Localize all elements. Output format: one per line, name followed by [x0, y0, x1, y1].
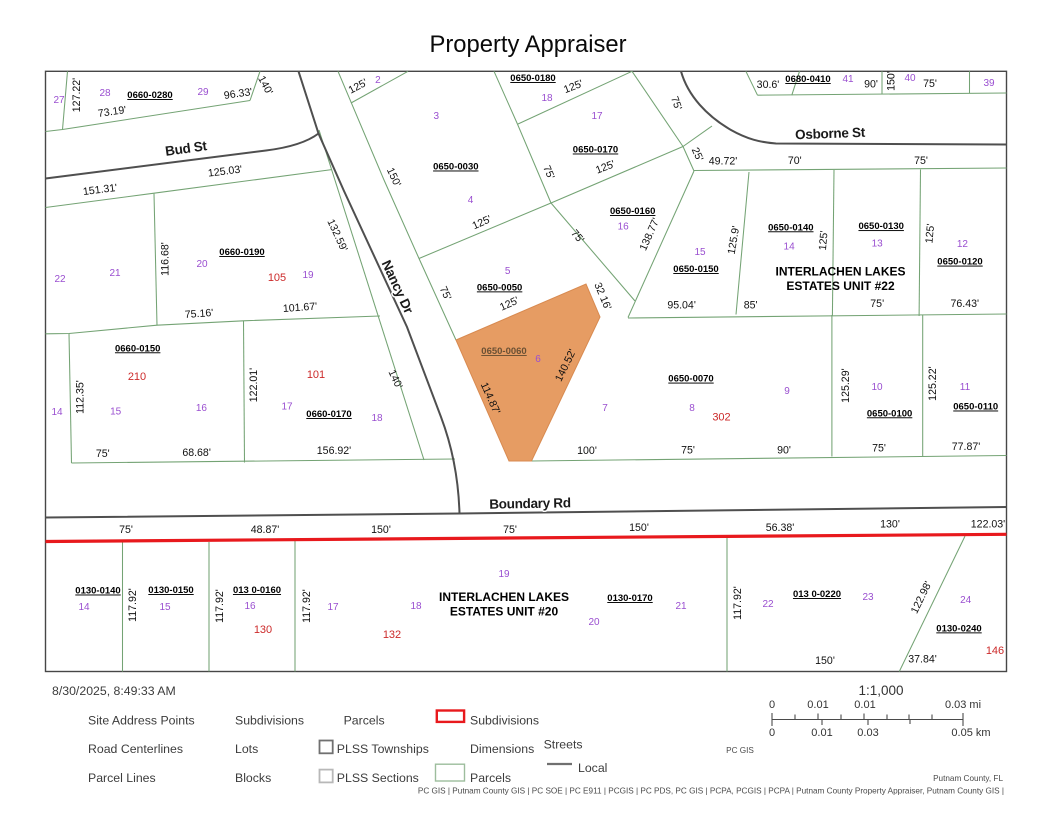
svg-text:0: 0 [769, 727, 775, 739]
svg-text:75': 75' [923, 78, 937, 90]
svg-text:12: 12 [957, 239, 969, 250]
svg-text:14: 14 [78, 602, 90, 613]
svg-text:10: 10 [871, 382, 883, 393]
svg-text:2: 2 [375, 75, 381, 86]
svg-text:Parcels: Parcels [344, 714, 385, 728]
svg-text:0650-0070: 0650-0070 [668, 374, 713, 385]
svg-text:0660-0190: 0660-0190 [219, 247, 264, 258]
svg-text:37.84': 37.84' [908, 653, 937, 665]
svg-text:Boundary Rd: Boundary Rd [489, 495, 571, 511]
svg-text:Blocks: Blocks [235, 771, 271, 785]
svg-text:17: 17 [281, 402, 293, 413]
svg-text:Parcel Lines: Parcel Lines [88, 771, 156, 785]
svg-text:5: 5 [505, 266, 511, 277]
svg-text:125.22': 125.22' [927, 366, 939, 400]
svg-text:15: 15 [110, 407, 122, 418]
svg-text:130: 130 [254, 624, 272, 636]
svg-text:0130-0170: 0130-0170 [607, 593, 652, 604]
svg-text:0650-0110: 0650-0110 [953, 402, 998, 413]
svg-text:27: 27 [53, 95, 65, 106]
svg-text:150': 150' [629, 522, 649, 534]
svg-text:117.92': 117.92' [214, 589, 226, 623]
svg-text:0: 0 [769, 699, 775, 711]
svg-text:0130-0150: 0130-0150 [148, 585, 193, 596]
svg-text:76.43': 76.43' [951, 298, 980, 310]
svg-text:0660-0280: 0660-0280 [127, 90, 172, 101]
svg-text:Site Address Points: Site Address Points [88, 714, 195, 728]
svg-text:68.68': 68.68' [182, 447, 211, 459]
svg-text:0.03 mi: 0.03 mi [945, 699, 981, 711]
svg-text:56.38': 56.38' [766, 522, 795, 534]
svg-text:90': 90' [864, 79, 878, 91]
svg-text:100': 100' [577, 445, 597, 457]
svg-text:1:1,000: 1:1,000 [858, 683, 903, 698]
svg-text:302: 302 [712, 412, 730, 424]
svg-text:013 0-0160: 013 0-0160 [233, 585, 281, 596]
svg-text:127.22': 127.22' [71, 78, 83, 112]
svg-text:40: 40 [904, 73, 916, 84]
svg-text:13: 13 [872, 238, 884, 249]
svg-text:75': 75' [503, 524, 517, 536]
svg-text:0650-0030: 0650-0030 [433, 162, 478, 173]
svg-text:125': 125' [923, 223, 937, 244]
svg-text:0660-0170: 0660-0170 [306, 409, 351, 420]
svg-text:0.01: 0.01 [854, 699, 875, 711]
svg-text:14: 14 [784, 242, 796, 253]
svg-text:17: 17 [327, 602, 339, 613]
svg-text:ESTATES UNIT #22: ESTATES UNIT #22 [786, 279, 895, 293]
svg-text:0650-0180: 0650-0180 [510, 73, 555, 84]
svg-text:14: 14 [51, 407, 63, 418]
svg-text:117.92': 117.92' [732, 586, 744, 620]
svg-text:117.92': 117.92' [127, 588, 139, 622]
svg-text:0650-0150: 0650-0150 [673, 264, 718, 275]
svg-text:PC GIS: PC GIS [726, 746, 754, 755]
svg-text:19: 19 [498, 569, 510, 580]
svg-text:28: 28 [99, 88, 111, 99]
svg-text:49.72': 49.72' [709, 156, 738, 168]
svg-text:19: 19 [302, 270, 314, 281]
svg-text:Streets: Streets [544, 738, 583, 752]
svg-text:6: 6 [535, 354, 541, 365]
svg-text:15: 15 [159, 602, 171, 613]
svg-text:0.01: 0.01 [807, 699, 828, 711]
svg-text:116.68': 116.68' [160, 242, 172, 276]
svg-text:0650-0050: 0650-0050 [477, 282, 522, 293]
svg-text:7: 7 [602, 403, 608, 414]
svg-text:0650-0060: 0650-0060 [481, 346, 526, 357]
svg-text:21: 21 [675, 601, 687, 612]
svg-text:013 0-0220: 013 0-0220 [793, 589, 841, 600]
svg-text:0680-0410: 0680-0410 [785, 74, 830, 85]
svg-text:18: 18 [371, 413, 383, 424]
svg-text:122.01': 122.01' [248, 368, 260, 402]
svg-text:17: 17 [591, 111, 603, 122]
svg-text:24: 24 [960, 595, 972, 606]
svg-text:20: 20 [588, 617, 600, 628]
svg-text:150': 150' [886, 71, 898, 91]
svg-text:9: 9 [784, 386, 790, 397]
svg-text:0650-0130: 0650-0130 [858, 221, 903, 232]
svg-text:0.05 km: 0.05 km [951, 727, 990, 739]
svg-text:39: 39 [983, 78, 995, 89]
svg-text:29: 29 [197, 87, 209, 98]
svg-text:0650-0140: 0650-0140 [768, 222, 813, 233]
svg-text:INTERLACHEN LAKES: INTERLACHEN LAKES [439, 590, 569, 604]
svg-text:210: 210 [128, 371, 146, 383]
svg-text:146: 146 [986, 645, 1004, 657]
svg-text:41: 41 [842, 74, 854, 85]
svg-text:75': 75' [681, 444, 695, 456]
svg-text:70': 70' [788, 155, 802, 167]
svg-text:Parcels: Parcels [470, 771, 511, 785]
svg-text:8: 8 [689, 403, 695, 414]
svg-text:20: 20 [196, 259, 208, 270]
svg-text:48.87': 48.87' [251, 524, 280, 536]
svg-text:75': 75' [119, 524, 133, 536]
svg-text:0650-0170: 0650-0170 [573, 145, 618, 156]
svg-text:15: 15 [694, 247, 706, 258]
svg-text:75': 75' [96, 448, 110, 460]
svg-text:156.92': 156.92' [317, 445, 351, 457]
svg-text:75': 75' [870, 298, 884, 310]
svg-text:Putnam County, FL: Putnam County, FL [933, 774, 1003, 783]
svg-text:18: 18 [541, 93, 553, 104]
svg-text:16: 16 [196, 403, 208, 414]
svg-text:21: 21 [109, 268, 121, 279]
svg-text:150': 150' [815, 655, 835, 667]
svg-text:0650-0160: 0650-0160 [610, 206, 655, 217]
svg-text:Osborne St: Osborne St [795, 125, 866, 142]
svg-text:75.16': 75.16' [184, 307, 213, 321]
svg-text:101.67': 101.67' [282, 301, 317, 315]
svg-text:0.01: 0.01 [811, 727, 832, 739]
svg-text:ESTATES UNIT #20: ESTATES UNIT #20 [450, 605, 559, 619]
svg-text:PLSS Sections: PLSS Sections [337, 771, 419, 785]
svg-text:117.92': 117.92' [301, 589, 313, 623]
svg-text:16: 16 [244, 601, 256, 612]
svg-text:0130-0240: 0130-0240 [936, 623, 981, 634]
svg-text:Dimensions: Dimensions [470, 742, 534, 756]
svg-text:122.03': 122.03' [971, 519, 1005, 531]
svg-text:INTERLACHEN LAKES: INTERLACHEN LAKES [775, 265, 905, 279]
svg-text:130': 130' [880, 519, 900, 531]
svg-text:23: 23 [862, 592, 874, 603]
svg-text:125': 125' [817, 230, 831, 251]
svg-text:Road Centerlines: Road Centerlines [88, 742, 183, 756]
svg-text:85': 85' [744, 300, 758, 312]
svg-text:77.87': 77.87' [952, 441, 981, 453]
svg-text:3: 3 [434, 111, 440, 122]
svg-text:PC GIS | Putnam County GIS | P: PC GIS | Putnam County GIS | PC SOE | PC… [418, 787, 1004, 796]
svg-text:30.6': 30.6' [757, 79, 780, 91]
svg-text:150': 150' [371, 524, 391, 536]
svg-text:75': 75' [914, 155, 928, 167]
svg-text:0.03: 0.03 [857, 727, 878, 739]
svg-text:105: 105 [268, 272, 286, 284]
svg-text:Subdivisions: Subdivisions [470, 714, 539, 728]
svg-text:11: 11 [960, 382, 971, 393]
svg-text:8/30/2025, 8:49:33 AM: 8/30/2025, 8:49:33 AM [52, 684, 176, 698]
svg-text:0650-0120: 0650-0120 [937, 257, 982, 268]
svg-text:4: 4 [468, 195, 474, 206]
svg-text:132: 132 [383, 629, 401, 641]
svg-text:0660-0150: 0660-0150 [115, 343, 160, 354]
svg-text:22: 22 [54, 274, 66, 285]
svg-text:Lots: Lots [235, 742, 258, 756]
svg-text:101: 101 [307, 369, 325, 381]
svg-text:75': 75' [872, 442, 886, 454]
svg-text:125.29': 125.29' [840, 368, 852, 402]
svg-text:0650-0100: 0650-0100 [867, 408, 912, 419]
svg-text:PLSS Townships: PLSS Townships [337, 742, 429, 756]
svg-text:90': 90' [777, 444, 791, 456]
svg-text:18: 18 [410, 601, 422, 612]
svg-text:0130-0140: 0130-0140 [75, 586, 120, 597]
svg-text:Local: Local [578, 761, 607, 775]
svg-text:95.04': 95.04' [667, 300, 696, 312]
svg-text:112.35': 112.35' [75, 380, 87, 414]
svg-text:22: 22 [762, 599, 774, 610]
svg-text:Subdivisions: Subdivisions [235, 714, 304, 728]
svg-text:16: 16 [618, 222, 630, 233]
svg-text:Property Appraiser: Property Appraiser [429, 31, 626, 58]
